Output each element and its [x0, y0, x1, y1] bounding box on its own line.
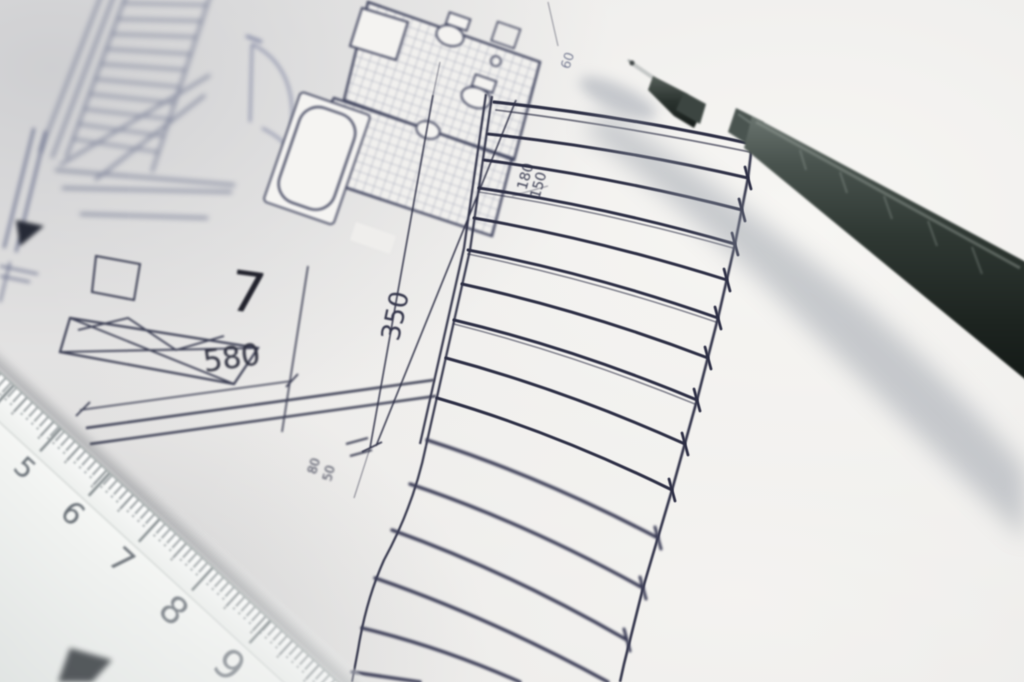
pen-needle-point — [630, 61, 635, 66]
floor-plan-photo: 580 7 80 50 — [0, 0, 1024, 682]
photo-scene: 580 7 80 50 — [0, 0, 1024, 682]
